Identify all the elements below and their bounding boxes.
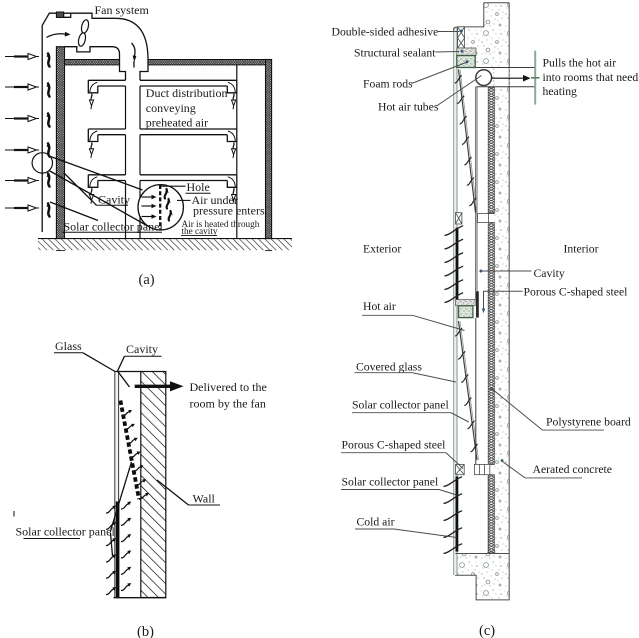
svg-text:preheated air: preheated air <box>146 115 208 129</box>
svg-text:into rooms that need: into rooms that need <box>543 71 639 84</box>
svg-text:Hole: Hole <box>187 180 210 194</box>
svg-text:conveying: conveying <box>146 101 196 115</box>
svg-text:heating: heating <box>543 85 578 98</box>
svg-text:Double-sided adhesive: Double-sided adhesive <box>332 26 439 39</box>
svg-text:Solar collector panel: Solar collector panel <box>64 220 164 234</box>
svg-text:(b): (b) <box>137 624 154 638</box>
svg-text:Porous C-shaped steel: Porous C-shaped steel <box>342 439 447 452</box>
svg-text:Aerated concrete: Aerated concrete <box>533 463 612 476</box>
svg-text:pressure enters: pressure enters <box>193 203 265 217</box>
svg-text:the cavity: the cavity <box>182 226 218 236</box>
svg-text:Cavity: Cavity <box>98 193 130 207</box>
svg-text:Solar collector panel: Solar collector panel <box>352 399 449 412</box>
svg-text:Porous C-shaped steel: Porous C-shaped steel <box>524 286 629 299</box>
svg-text:Solar collector panel: Solar collector panel <box>16 525 116 539</box>
svg-text:room by the fan: room by the fan <box>190 397 266 411</box>
svg-text:Pulls the hot air: Pulls the hot air <box>543 57 617 70</box>
svg-text:Cold air: Cold air <box>357 516 395 529</box>
svg-text:(a): (a) <box>139 272 155 288</box>
svg-text:Interior: Interior <box>564 243 599 256</box>
svg-text:Wall: Wall <box>193 492 216 506</box>
svg-text:Foam rods: Foam rods <box>363 78 413 91</box>
svg-text:Structural sealant: Structural sealant <box>354 47 436 60</box>
svg-text:Cavity: Cavity <box>126 342 158 356</box>
svg-text:Duct distribution: Duct distribution <box>146 86 228 100</box>
svg-text:(c): (c) <box>479 623 495 638</box>
svg-text:Cavity: Cavity <box>534 267 565 280</box>
svg-text:Exterior: Exterior <box>363 243 401 256</box>
svg-text:Covered glass: Covered glass <box>356 361 422 374</box>
svg-text:Hot air tubes: Hot air tubes <box>378 101 439 114</box>
svg-text:Polystyrene board: Polystyrene board <box>546 416 631 429</box>
svg-text:Hot air: Hot air <box>363 300 396 313</box>
svg-text:Glass: Glass <box>55 339 82 353</box>
svg-text:Delivered to the: Delivered to the <box>190 380 267 394</box>
svg-text:Fan system: Fan system <box>95 3 150 17</box>
svg-text:Solar collector panel: Solar collector panel <box>342 476 439 489</box>
